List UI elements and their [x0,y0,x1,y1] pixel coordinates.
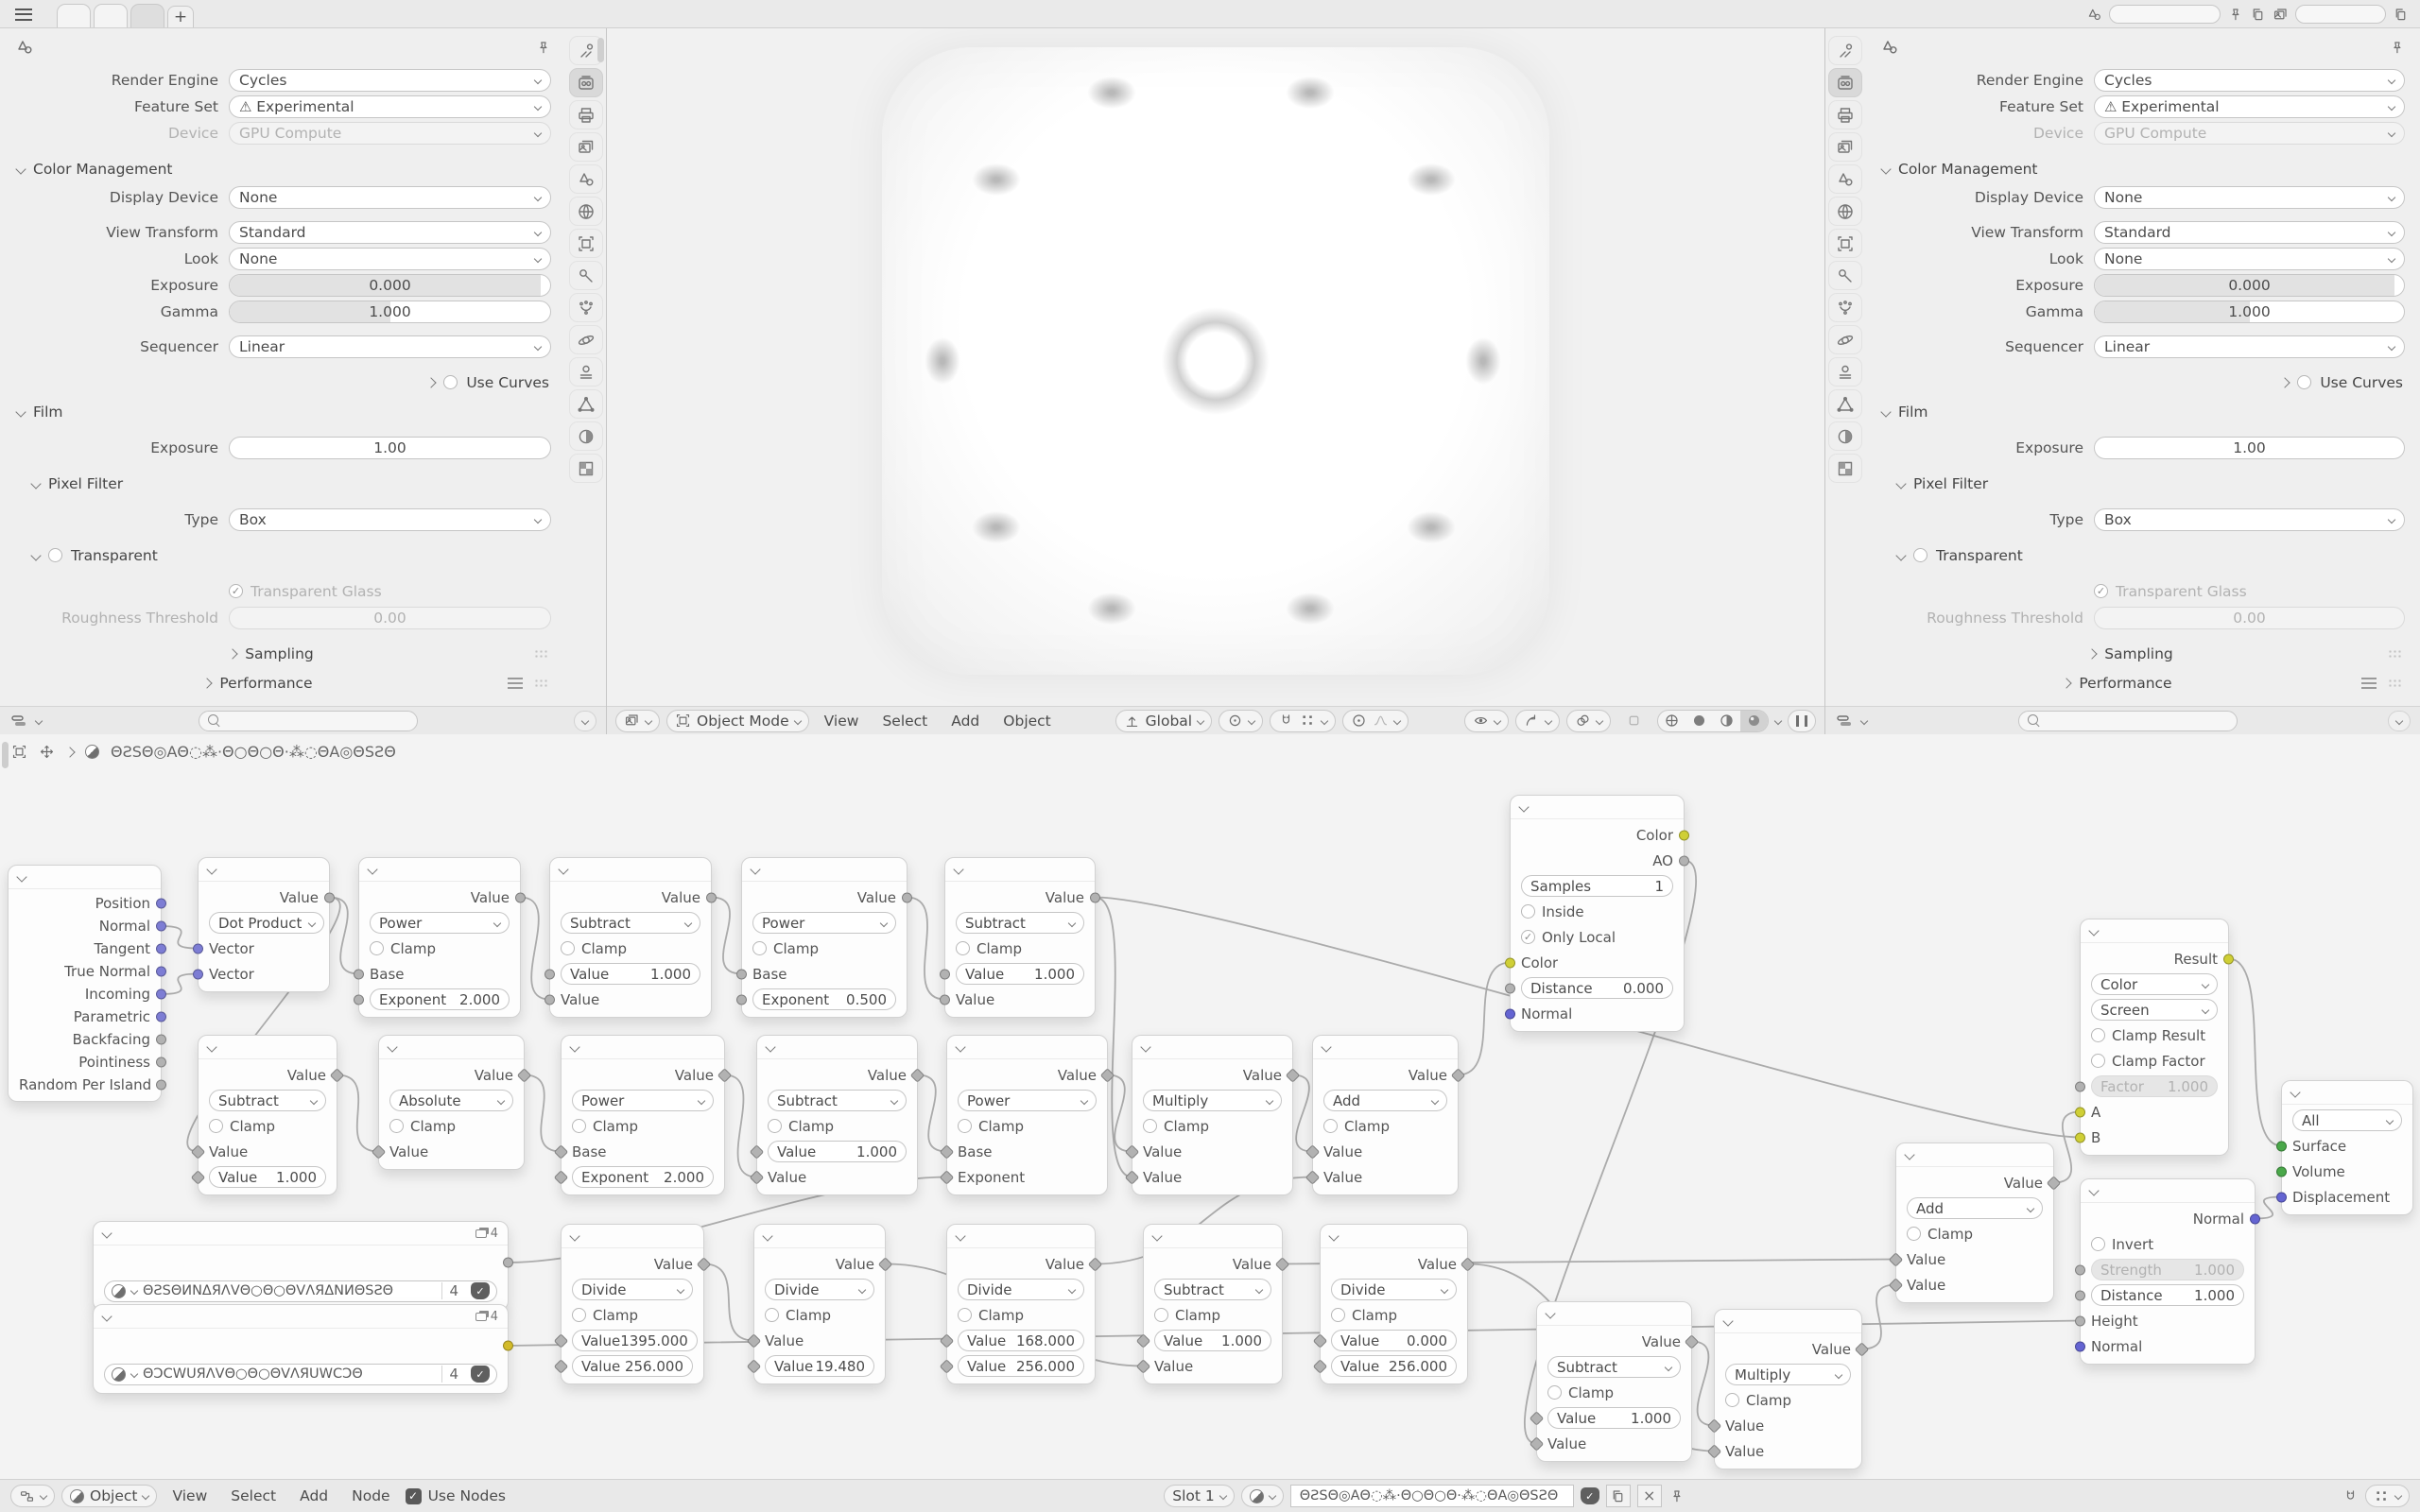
menu-add[interactable]: Add [942,713,988,730]
fake-user-shield[interactable]: ✓ [471,1282,490,1299]
light-paths-section[interactable]: Light Paths [1865,697,2420,706]
exposure-slider[interactable]: 0.000 [229,274,551,297]
number-field[interactable]: Value1.000 [1154,1330,1271,1351]
node-pow2a[interactable]: ValuePowerClampBaseExponent2.000 [358,857,521,1018]
enum-dropdown[interactable]: Dot Product [209,912,324,934]
properties-tab-output-icon[interactable] [569,100,603,129]
shader-type-dropdown[interactable]: Object [61,1485,157,1507]
properties-tab-data-icon[interactable] [569,389,603,419]
socket[interactable] [156,921,166,932]
film-exposure-field[interactable]: 1.00 [2094,437,2405,459]
number-field[interactable]: Distance0.000 [1521,977,1673,999]
properties-tab-scene-icon[interactable] [569,164,603,194]
menu-view[interactable]: View [816,713,868,730]
node-ao[interactable]: ColorAOSamples1InsideOnly LocalColorDist… [1510,795,1685,1032]
enum-dropdown[interactable]: Add [1323,1090,1447,1111]
checkbox-clamp[interactable] [768,1119,782,1133]
number-field[interactable]: Value1.000 [209,1166,326,1188]
properties-tab-viewlayer-icon[interactable] [569,132,603,162]
socket[interactable] [1505,957,1515,968]
socket[interactable] [940,969,950,979]
collapse-icon[interactable] [762,1230,772,1241]
filter-icon[interactable] [1835,712,1854,730]
collapse-icon[interactable] [1518,801,1529,812]
enum-dropdown[interactable]: Subtract [956,912,1084,934]
socket[interactable] [156,1080,166,1091]
number-field[interactable]: Value1395.000 [572,1330,698,1351]
socket[interactable] [2075,1341,2085,1351]
number-field[interactable]: Factor1.000 [2091,1075,2218,1097]
node-sub1c[interactable]: ValueSubtractClampValue1.000Value [756,1035,918,1195]
checkbox-clamp[interactable] [1547,1385,1562,1400]
material-name-field[interactable]: ΘƧSΘ◎AΘ◌⁂·Θ○Θ○Θ·⁂◌ΘA◎ΘSƧΘ [1290,1485,1574,1507]
orientation-dropdown[interactable]: Global [1115,710,1212,732]
properties-tab-output-icon[interactable] [1828,100,1862,129]
menu-add[interactable]: Add [291,1487,337,1504]
collapse-icon[interactable] [101,1228,112,1238]
use-curves-checkbox[interactable] [443,375,458,389]
node-header[interactable] [754,1225,885,1248]
film-section[interactable]: Film [0,397,566,426]
snap-target-dropdown[interactable] [2365,1485,2410,1507]
node-header[interactable] [1715,1310,1861,1333]
copy-material-button[interactable] [1606,1485,1631,1507]
number-field[interactable]: Value0.000 [1331,1330,1457,1351]
pivot-dropdown[interactable] [1219,710,1263,732]
node-header[interactable] [2282,1081,2412,1105]
number-field[interactable]: Value168.000 [958,1330,1084,1351]
node-sub4[interactable]: ValueSubtractClampValue1.000Value [1536,1301,1692,1462]
enum-dropdown[interactable]: Screen [2091,999,2218,1021]
socket[interactable] [2075,1132,2085,1143]
collapse-icon[interactable] [1321,1041,1331,1052]
socket[interactable] [156,944,166,954]
socket[interactable] [324,892,335,902]
node-header[interactable] [359,858,520,882]
number-field[interactable]: Exponent2.000 [370,988,510,1010]
node-group1[interactable]: 4ΘƧSΘИNΔЯΛVΘ○Θ○ΘVΛЯΔNИΘSƧΘ4✓ [93,1221,509,1311]
collapse-icon[interactable] [2290,1087,2300,1097]
add-workspace-button[interactable]: + [167,6,194,27]
collapse-icon[interactable] [953,864,963,874]
workspace-tab-active[interactable] [130,4,164,27]
transparent-section[interactable]: Transparent [0,541,566,570]
properties-tab-physics-icon[interactable] [569,325,603,354]
collapse-icon[interactable] [765,1041,775,1052]
number-field[interactable]: Distance1.000 [2091,1284,2244,1306]
checkbox-invert[interactable] [2091,1237,2105,1251]
magnet-icon[interactable] [2342,1488,2359,1504]
checkbox-clamp[interactable] [956,941,970,955]
use-curves-checkbox[interactable] [2297,375,2311,389]
node-header[interactable] [9,866,161,889]
socket[interactable] [1679,855,1689,866]
node-header[interactable] [742,858,907,882]
checkbox-clamp[interactable] [1154,1308,1168,1322]
collapse-icon[interactable] [750,864,760,874]
properties-tab-render-icon[interactable] [569,68,603,97]
socket[interactable] [156,967,166,977]
node-div1[interactable]: ValueDivideClampValue1395.000Value256.00… [561,1224,704,1384]
node-header[interactable] [945,858,1095,882]
viewport-3d[interactable]: Object Mode View Select Add Object Globa… [607,28,1824,734]
shading-solid-button[interactable] [1685,711,1713,731]
socket[interactable] [2276,1166,2287,1177]
gamma-slider[interactable]: 1.000 [229,301,551,323]
node-header[interactable] [1896,1143,2053,1167]
checkbox-clamp[interactable] [752,941,767,955]
snap-group[interactable] [1270,710,1336,732]
search-input[interactable] [2018,711,2238,731]
properties-tab-material-icon[interactable] [569,421,603,451]
enum-dropdown[interactable]: Subtract [561,912,700,934]
workspace-tab[interactable] [94,4,128,27]
checkbox-clamp[interactable] [389,1119,404,1133]
socket[interactable] [1505,1008,1515,1019]
properties-tab-material-icon[interactable] [1828,421,1862,451]
number-field[interactable]: Value256.000 [572,1355,693,1377]
feature-set-dropdown[interactable]: ⚠ Experimental [229,95,551,118]
drag-handle[interactable] [534,679,549,688]
visibility-dropdown[interactable] [1464,710,1509,732]
collapse-icon[interactable] [367,864,377,874]
transparent-checkbox[interactable] [48,548,62,562]
node-header[interactable] [1144,1225,1282,1248]
socket[interactable] [2223,954,2234,964]
enum-dropdown[interactable]: Divide [958,1279,1084,1300]
number-field[interactable]: Value256.000 [958,1355,1084,1377]
number-field[interactable]: Strength1.000 [2091,1259,2244,1280]
render-engine-dropdown[interactable]: Cycles [2094,69,2405,92]
socket[interactable] [193,943,203,954]
properties-tab-world-icon[interactable] [1828,197,1862,226]
socket[interactable] [2250,1213,2260,1224]
number-field[interactable]: Exponent2.000 [572,1166,714,1188]
enum-dropdown[interactable]: Multiply [1725,1364,1851,1385]
node-header[interactable] [2081,1179,2255,1203]
chevron-down-icon[interactable] [35,716,43,724]
checkbox-clamp[interactable] [1907,1227,1921,1241]
number-field[interactable]: Value1.000 [956,963,1084,985]
enum-dropdown[interactable]: Divide [572,1279,693,1300]
editor-type-button[interactable] [615,710,660,732]
socket[interactable] [354,969,364,979]
drag-handle[interactable] [534,649,549,659]
pixel-filter-section[interactable]: Pixel Filter [0,469,566,498]
properties-tab-scene-icon[interactable] [1828,164,1862,194]
drag-handle[interactable] [2388,649,2403,659]
checkbox-clamp[interactable] [958,1119,972,1133]
node-mul2[interactable]: ValueMultiplyClampValueValue [1714,1309,1862,1469]
collapse-icon[interactable] [206,864,216,874]
enum-dropdown[interactable]: Color [2091,973,2218,995]
checkbox-inside[interactable] [1521,904,1535,919]
display-device-dropdown[interactable]: None [229,186,551,209]
node-header[interactable] [199,858,329,882]
enum-dropdown[interactable]: Subtract [209,1090,326,1111]
users-count[interactable]: 4 [441,1282,465,1299]
device-dropdown[interactable]: GPU Compute [2094,122,2405,145]
socket[interactable] [503,1258,513,1268]
enum-dropdown[interactable]: Power [572,1090,714,1111]
scrollbar[interactable] [597,38,604,62]
socket[interactable] [156,1057,166,1068]
node-canvas[interactable]: PositionNormalTangentTrue NormalIncoming… [0,734,2420,1479]
checkbox-clamp[interactable] [561,941,575,955]
collapse-icon[interactable] [2088,1185,2099,1195]
shading-wireframe-button[interactable] [1658,711,1685,731]
shader-node-editor[interactable]: ΘƧSΘ◎AΘ◌⁂·Θ○Θ○Θ·⁂◌ΘA◎ΘSƧΘ PositionNormal… [0,734,2420,1512]
menu-icon[interactable] [15,9,32,21]
sampling-section[interactable]: Sampling [1865,639,2420,668]
number-field[interactable]: Exponent0.500 [752,988,896,1010]
enum-dropdown[interactable]: Power [958,1090,1097,1111]
enum-dropdown[interactable]: Subtract [1154,1279,1271,1300]
socket[interactable] [515,892,526,902]
node-dot[interactable]: ValueDot ProductVectorVector [198,857,330,992]
node-header[interactable] [1313,1036,1458,1059]
workspace-tab[interactable] [57,4,91,27]
node-header[interactable] [2081,919,2228,943]
scrollbar[interactable] [2,742,9,768]
checkbox-clamp[interactable] [1725,1393,1739,1407]
node-header[interactable] [1511,796,1684,819]
collapse-icon[interactable] [569,1041,579,1052]
socket[interactable] [1090,892,1100,902]
slot-dropdown[interactable]: Slot 1 [1164,1485,1235,1507]
socket[interactable] [2075,1290,2085,1300]
node-div4[interactable]: ValueDivideClampValue0.000Value256.000 [1320,1224,1468,1384]
pixel-filter-type-dropdown[interactable]: Box [229,508,551,531]
properties-tab-texture-icon[interactable] [569,454,603,483]
node-geo[interactable]: PositionNormalTangentTrue NormalIncoming… [8,865,162,1102]
enum-dropdown[interactable]: Multiply [1143,1090,1282,1111]
node-mul1[interactable]: ValueMultiplyClampValueValue [1132,1035,1293,1195]
light-paths-section[interactable]: Light Paths [0,697,566,706]
properties-tab-constraints-icon[interactable] [1828,357,1862,387]
socket[interactable] [156,899,166,909]
feature-set-dropdown[interactable]: ⚠ Experimental [2094,95,2405,118]
search-input[interactable] [199,711,418,731]
shading-options-chevron[interactable] [1774,716,1782,724]
copy-icon[interactable] [2393,7,2409,23]
collapse-icon[interactable] [1545,1308,1555,1318]
pause-render-button[interactable] [1788,710,1816,732]
checkbox-clamp[interactable] [572,1308,586,1322]
pin-icon[interactable] [2389,40,2405,56]
node-header[interactable] [757,1036,917,1059]
chevron-down-icon[interactable] [1860,716,1868,724]
shading-rendered-button[interactable] [1740,711,1768,731]
roughness-threshold-field[interactable]: 0.00 [2094,607,2405,629]
collapse-icon[interactable] [569,1230,579,1241]
properties-tab-tool-icon[interactable] [1828,36,1862,65]
use-curves-section[interactable]: Use Curves [0,368,566,397]
number-field[interactable]: Value1.000 [1547,1407,1681,1429]
socket[interactable] [2075,1107,2085,1117]
number-field[interactable]: Value1.000 [768,1141,907,1162]
checkbox-clamp[interactable] [765,1308,779,1322]
transparent-checkbox[interactable] [1913,548,1927,562]
collapse-icon[interactable] [955,1041,965,1052]
menu-select[interactable]: Select [222,1487,285,1504]
node-header[interactable] [1321,1225,1467,1248]
node-pow2b[interactable]: ValuePowerClampBaseExponent2.000 [561,1035,725,1195]
socket[interactable] [156,989,166,1000]
socket[interactable] [2075,1264,2085,1275]
color-management-section[interactable]: Color Management [1865,154,2420,183]
socket[interactable] [940,994,950,1005]
viewlayer-selector[interactable] [2295,5,2386,24]
node-mix[interactable]: ResultColorScreenClamp ResultClamp Facto… [2080,919,2229,1156]
node-header[interactable] [562,1225,703,1248]
pin-icon[interactable] [1668,1488,1685,1504]
collapse-icon[interactable] [16,871,26,882]
socket[interactable] [354,994,364,1005]
performance-section[interactable]: Performance [0,668,566,697]
use-nodes-checkbox[interactable]: ✓ [406,1488,422,1504]
collapse-icon[interactable] [955,1230,965,1241]
node-header[interactable] [1132,1036,1292,1059]
properties-tab-texture-icon[interactable] [1828,454,1862,483]
device-dropdown[interactable]: GPU Compute [229,122,551,145]
collapse-icon[interactable] [1140,1041,1150,1052]
number-field[interactable]: Samples1 [1521,875,1673,897]
properties-tab-modifiers-icon[interactable] [1828,261,1862,290]
checkbox-clamp[interactable] [370,941,384,955]
collapse-icon[interactable] [1328,1230,1339,1241]
checkbox-only-local[interactable] [1521,930,1535,944]
render-engine-dropdown[interactable]: Cycles [229,69,551,92]
node-bump[interactable]: NormalInvertStrength1.000Distance1.000He… [2080,1178,2256,1365]
pin-icon[interactable] [2227,7,2243,23]
checkbox-clamp[interactable] [1143,1119,1157,1133]
pin-icon[interactable] [535,40,551,56]
node-group2[interactable]: 4ΘƆCWUЯΛVΘ○Θ○ΘVΛЯUWCƆΘ4✓ [93,1304,509,1394]
socket[interactable] [1679,830,1689,840]
properties-tab-constraints-icon[interactable] [569,357,603,387]
gamma-slider[interactable]: 1.000 [2094,301,2405,323]
checkbox-clamp[interactable] [958,1308,972,1322]
users-count[interactable]: 4 [441,1366,465,1383]
collapse-icon[interactable] [2088,925,2099,936]
socket[interactable] [1505,983,1515,993]
view-transform-dropdown[interactable]: Standard [2094,221,2405,244]
properties-tab-physics-icon[interactable] [1828,325,1862,354]
view-transform-dropdown[interactable]: Standard [229,221,551,244]
socket[interactable] [156,1035,166,1045]
node-sub1a[interactable]: ValueSubtractClampValue1.000Value [549,857,712,1018]
socket[interactable] [2075,1315,2085,1326]
node-abs[interactable]: ValueAbsoluteClampValue [378,1035,525,1170]
menu-object[interactable]: Object [994,713,1059,730]
proportional-edit-group[interactable] [1342,710,1409,732]
socket[interactable] [2276,1141,2287,1151]
options-button[interactable] [574,711,596,731]
shading-material-button[interactable] [1713,711,1740,731]
checkbox-clamp[interactable] [209,1119,223,1133]
socket[interactable] [193,969,203,979]
socket[interactable] [2075,1081,2085,1091]
node-sub2[interactable]: ValueSubtractClampValueValue1.000 [198,1035,337,1195]
collapse-icon[interactable] [1904,1149,1914,1160]
node-sub1b[interactable]: ValueSubtractClampValue1.000Value [944,857,1096,1018]
fake-user-shield[interactable]: ✓ [471,1366,490,1383]
pixel-filter-section[interactable]: Pixel Filter [1865,469,2420,498]
transparent-glass-checkbox[interactable] [229,584,243,598]
checkbox-clamp[interactable] [1331,1308,1345,1322]
properties-tab-object-icon[interactable] [569,229,603,258]
color-management-section[interactable]: Color Management [0,154,566,183]
node-header[interactable]: 4 [94,1305,508,1329]
node-header[interactable] [947,1225,1095,1248]
sequencer-dropdown[interactable]: Linear [229,335,551,358]
performance-section[interactable]: Performance [1865,668,2420,697]
node-powc[interactable]: ValuePowerClampBaseExponent [946,1035,1108,1195]
look-dropdown[interactable]: None [229,248,551,270]
collapse-icon[interactable] [206,1041,216,1052]
sequencer-dropdown[interactable]: Linear [2094,335,2405,358]
film-section[interactable]: Film [1865,397,2420,426]
sampling-section[interactable]: Sampling [0,639,566,668]
number-field[interactable]: Value256.000 [1331,1355,1457,1377]
xray-toggle[interactable] [1617,710,1651,732]
editor-type-button[interactable] [10,1485,55,1507]
enum-dropdown[interactable]: All [2292,1109,2402,1131]
node-add1[interactable]: ValueAddClampValueValue [1312,1035,1459,1195]
fake-user-shield[interactable]: ✓ [1581,1487,1599,1504]
properties-tab-modifiers-icon[interactable] [569,261,603,290]
checkbox-clamp[interactable] [572,1119,586,1133]
node-header[interactable] [947,1036,1107,1059]
drag-handle[interactable] [2388,679,2403,688]
film-exposure-field[interactable]: 1.00 [229,437,551,459]
exposure-slider[interactable]: 0.000 [2094,274,2405,297]
properties-tab-particles-icon[interactable] [1828,293,1862,322]
socket[interactable] [706,892,717,902]
socket[interactable] [503,1341,513,1351]
preset-icon[interactable] [2361,678,2377,689]
socket[interactable] [544,994,555,1005]
enum-dropdown[interactable]: Power [752,912,896,934]
node-header[interactable] [562,1036,724,1059]
pixel-filter-type-dropdown[interactable]: Box [2094,508,2405,531]
enum-dropdown[interactable]: Divide [1331,1279,1457,1300]
socket[interactable] [2276,1192,2287,1202]
socket[interactable] [736,994,747,1005]
properties-tab-world-icon[interactable] [569,197,603,226]
options-button[interactable] [2388,711,2411,731]
material-browse-dropdown[interactable] [1241,1485,1284,1507]
socket[interactable] [544,969,555,979]
checkbox-clamp-factor[interactable] [2091,1054,2105,1068]
properties-tab-particles-icon[interactable] [569,293,603,322]
enum-dropdown[interactable]: Absolute [389,1090,513,1111]
properties-tab-data-icon[interactable] [1828,389,1862,419]
number-field[interactable]: Value1.000 [561,963,700,985]
look-dropdown[interactable]: None [2094,248,2405,270]
transparent-glass-checkbox[interactable] [2094,584,2108,598]
gizmo-dropdown[interactable] [1515,710,1560,732]
properties-tab-render-icon[interactable] [1828,68,1862,97]
enum-dropdown[interactable]: Subtract [1547,1356,1681,1378]
datablock-selector[interactable]: ΘƧSΘИNΔЯΛVΘ○Θ○ΘVΛЯΔNИΘSƧΘ4✓ [104,1280,497,1302]
enum-dropdown[interactable]: Power [370,912,510,934]
node-header[interactable]: 4 [94,1222,508,1246]
scene-selector[interactable] [2109,5,2221,24]
properties-tab-object-icon[interactable] [1828,229,1862,258]
checkbox-clamp-result[interactable] [2091,1028,2105,1042]
